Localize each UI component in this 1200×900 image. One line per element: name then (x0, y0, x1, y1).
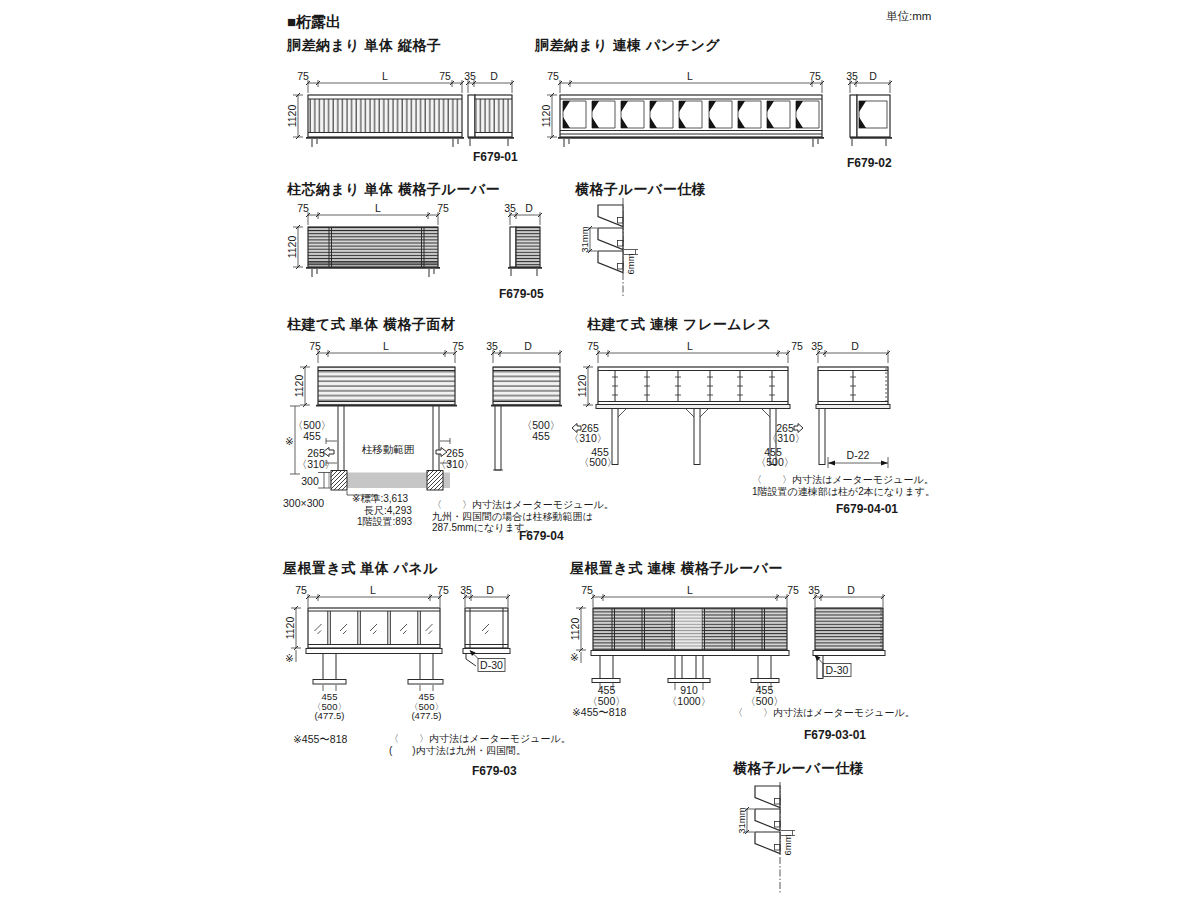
dim-D: D (486, 584, 494, 596)
dim-75: 75 (809, 70, 821, 82)
diagram-title-d02: 胴差納まり 連棟 パンチング (535, 37, 720, 55)
d04-note-kyushu: 九州・四国間の場合は柱移動範囲は (432, 511, 614, 523)
diagram-title-d04-01: 柱建て式 連棟 フレームレス (587, 316, 772, 334)
dim-6mm: 6mm (625, 253, 636, 274)
figure-code-d01: F679-01 (473, 150, 518, 164)
dim-75: 75 (437, 202, 449, 214)
dim-75: 75 (297, 202, 309, 214)
dim-35: 35 (486, 340, 498, 352)
d03-notes: 〈 〉内寸法はメーターモジュール。 ( )内寸法は九州・四国間。 (389, 733, 571, 757)
dim-35: 35 (808, 584, 820, 596)
dim-477-5: (477.5) (411, 710, 441, 721)
diagram-title-d05: 柱芯納まり 単体 横格子ルーバー (287, 181, 500, 199)
diagram-title-d03-01: 屋根置き式 連棟 横格子ルーバー (570, 560, 783, 578)
dim-75: 75 (547, 70, 559, 82)
d04-side-view: 35 D (486, 340, 562, 470)
d05-front-view: 75 L 75 1120 (286, 202, 449, 277)
asterisk-mark: ※ (285, 435, 294, 447)
dim-31mm: 31mm (736, 807, 747, 833)
d01-front-view: 75 L 75 1120 (286, 70, 464, 147)
d04-note-long: 長尺:4,293 (364, 505, 412, 517)
catalog-page: 75 L 75 1120 35 D 75 L 75 1120 (0, 0, 1200, 900)
dim-D: D (847, 584, 855, 596)
dim-75: 75 (787, 584, 799, 596)
d03-01-front-view: 75 L 75 1120 ※ 455 〈500〉 910 〈1000〉 455 … (569, 584, 799, 707)
dim-L: L (687, 340, 693, 352)
dim-31mm: 31mm (579, 226, 590, 252)
dim-1120: 1120 (569, 618, 581, 641)
dim-D: D (524, 340, 532, 352)
diagram-title-d04: 柱建て式 単体 横格子面材 (287, 316, 456, 334)
dim-477-5: (477.5) (314, 710, 344, 721)
diagram-title-spec-bottom: 横格子ルーバー仕様 (733, 760, 864, 778)
dim-500: 〈500〉 (579, 456, 618, 468)
footing-hatch-right (427, 471, 443, 491)
d04-01-notes: 〈 〉内寸法はメーターモジュール。 1階設置の連棟部は柱が2本になります。 (752, 474, 935, 497)
louver-spec-top-drawing: 31mm 6mm (579, 198, 638, 297)
dim-L: L (383, 340, 389, 352)
dim-310: 〈310〉 (297, 458, 336, 470)
dim-35: 35 (846, 70, 858, 82)
dim-1000: 〈1000〉 (667, 695, 711, 707)
figure-code-d04-01: F679-04-01 (836, 502, 898, 516)
drawings-canvas: 75 L 75 1120 35 D 75 L 75 1120 (0, 0, 1200, 900)
d04-note-module: 〈 〉内寸法はメーターモジュール。 (432, 499, 614, 511)
dim-35: 35 (464, 70, 476, 82)
d03-01-range-note: ※455〜818 (572, 707, 626, 719)
d04-front-view: 75 L 75 1120 ※ 〈500〉 455 265 〈310〉 〈500〉… (283, 340, 560, 509)
d03-01-side-view: 35 D D-30 (808, 584, 885, 679)
dim-L: L (687, 70, 693, 82)
dim-500: 〈500〉 (587, 695, 626, 707)
dim-500: 〈500〉 (745, 695, 784, 707)
dim-1120: 1120 (540, 105, 552, 128)
dim-D22: D-22 (847, 449, 870, 461)
d02-side-view: 35 D (846, 70, 892, 146)
dim-1120: 1120 (576, 375, 588, 398)
d03-range-note: ※455〜818 (293, 734, 347, 746)
d04-01-note-module: 〈 〉内寸法はメーターモジュール。 (752, 474, 935, 486)
footing-hatch-left (331, 471, 347, 491)
center-bay-highlight (675, 609, 702, 649)
d04-notes-left: ※標準:3,613 長尺:4,293 1階設置:893 (352, 493, 412, 528)
dim-75: 75 (439, 70, 451, 82)
dim-455: 455 (532, 430, 550, 442)
figure-code-d04: F679-04 (519, 529, 564, 543)
dim-L: L (375, 202, 381, 214)
dim-L: L (382, 70, 388, 82)
dim-D: D (525, 202, 533, 214)
dim-300: 300 (301, 475, 319, 487)
dim-35: 35 (504, 202, 516, 214)
asterisk-mark: ※ (570, 651, 579, 663)
d04-01-front-view: 75 L 75 1120 265 〈310〉 455 〈500〉 265 〈31… (569, 340, 806, 468)
dim-455: 455 (303, 430, 321, 442)
d04-01-side-view: 35 D D-22 (811, 340, 890, 468)
dim-300x300: 300×300 (283, 497, 324, 509)
dim-D30: D-30 (826, 664, 849, 676)
dim-L: L (370, 584, 376, 596)
figure-code-d02: F679-02 (847, 156, 892, 170)
dim-D: D (869, 70, 877, 82)
d04-note-first-floor: 1階設置:893 (357, 516, 412, 528)
dim-75: 75 (581, 584, 593, 596)
dim-310: 〈310〉 (436, 458, 475, 470)
d01-side-view: 35 D (464, 70, 514, 146)
d05-side-view: 35 D (504, 202, 542, 276)
d03-01-note-module: 〈 〉内寸法はメーターモジュール。 (733, 707, 915, 719)
dim-75: 75 (791, 340, 803, 352)
dim-75: 75 (437, 584, 449, 596)
dim-D: D (851, 340, 859, 352)
d03-note-module: 〈 〉内寸法はメーターモジュール。 (389, 733, 571, 745)
dim-75: 75 (452, 340, 464, 352)
post-move-range-label: 柱移動範囲 (362, 443, 415, 455)
dim-35: 35 (460, 584, 472, 596)
dim-310: 〈310〉 (569, 432, 608, 444)
dim-75: 75 (309, 340, 321, 352)
d02-front-view: 75 L 75 1120 (540, 70, 824, 147)
dim-75: 75 (297, 70, 309, 82)
d03-side-view: 35 D D-30 (460, 584, 510, 672)
dim-1120: 1120 (286, 105, 298, 128)
dim-310: 〈310〉 (767, 432, 806, 444)
d03-note-kyushu: ( )内寸法は九州・四国間。 (389, 745, 571, 757)
dim-1120: 1120 (293, 375, 305, 398)
figure-code-d05: F679-05 (499, 287, 544, 301)
figure-code-d03: F679-03 (472, 764, 517, 778)
dim-75: 75 (295, 584, 307, 596)
figure-code-d03-01: F679-03-01 (804, 728, 866, 742)
dim-6mm: 6mm (782, 834, 793, 855)
dim-35: 35 (811, 340, 823, 352)
dim-D: D (490, 70, 498, 82)
d04-01-note-posts: 1階設置の連棟部は柱が2本になります。 (752, 486, 935, 498)
dim-1120: 1120 (284, 617, 296, 640)
dim-L: L (687, 584, 693, 596)
section-title: ■桁露出 (287, 13, 341, 32)
louver-spec-bottom-drawing: 31mm 6mm (736, 782, 795, 894)
d03-front-view: 75 L 75 1120 ※ 455 〈500〉 (477.5) 455 〈50… (284, 584, 449, 721)
diagram-title-d03: 屋根置き式 単体 パネル (283, 560, 438, 578)
dim-1120: 1120 (286, 236, 298, 259)
unit-label: 単位:mm (886, 9, 931, 24)
dim-D30: D-30 (480, 659, 503, 671)
diagram-title-spec-top: 横格子ルーバー仕様 (575, 181, 706, 199)
diagram-title-d01: 胴差納まり 単体 縦格子 (287, 37, 441, 55)
dim-75: 75 (587, 340, 599, 352)
dim-500: 〈500〉 (756, 456, 795, 468)
d04-note-standard: ※標準:3,613 (352, 493, 412, 505)
asterisk-mark: ※ (285, 652, 294, 664)
